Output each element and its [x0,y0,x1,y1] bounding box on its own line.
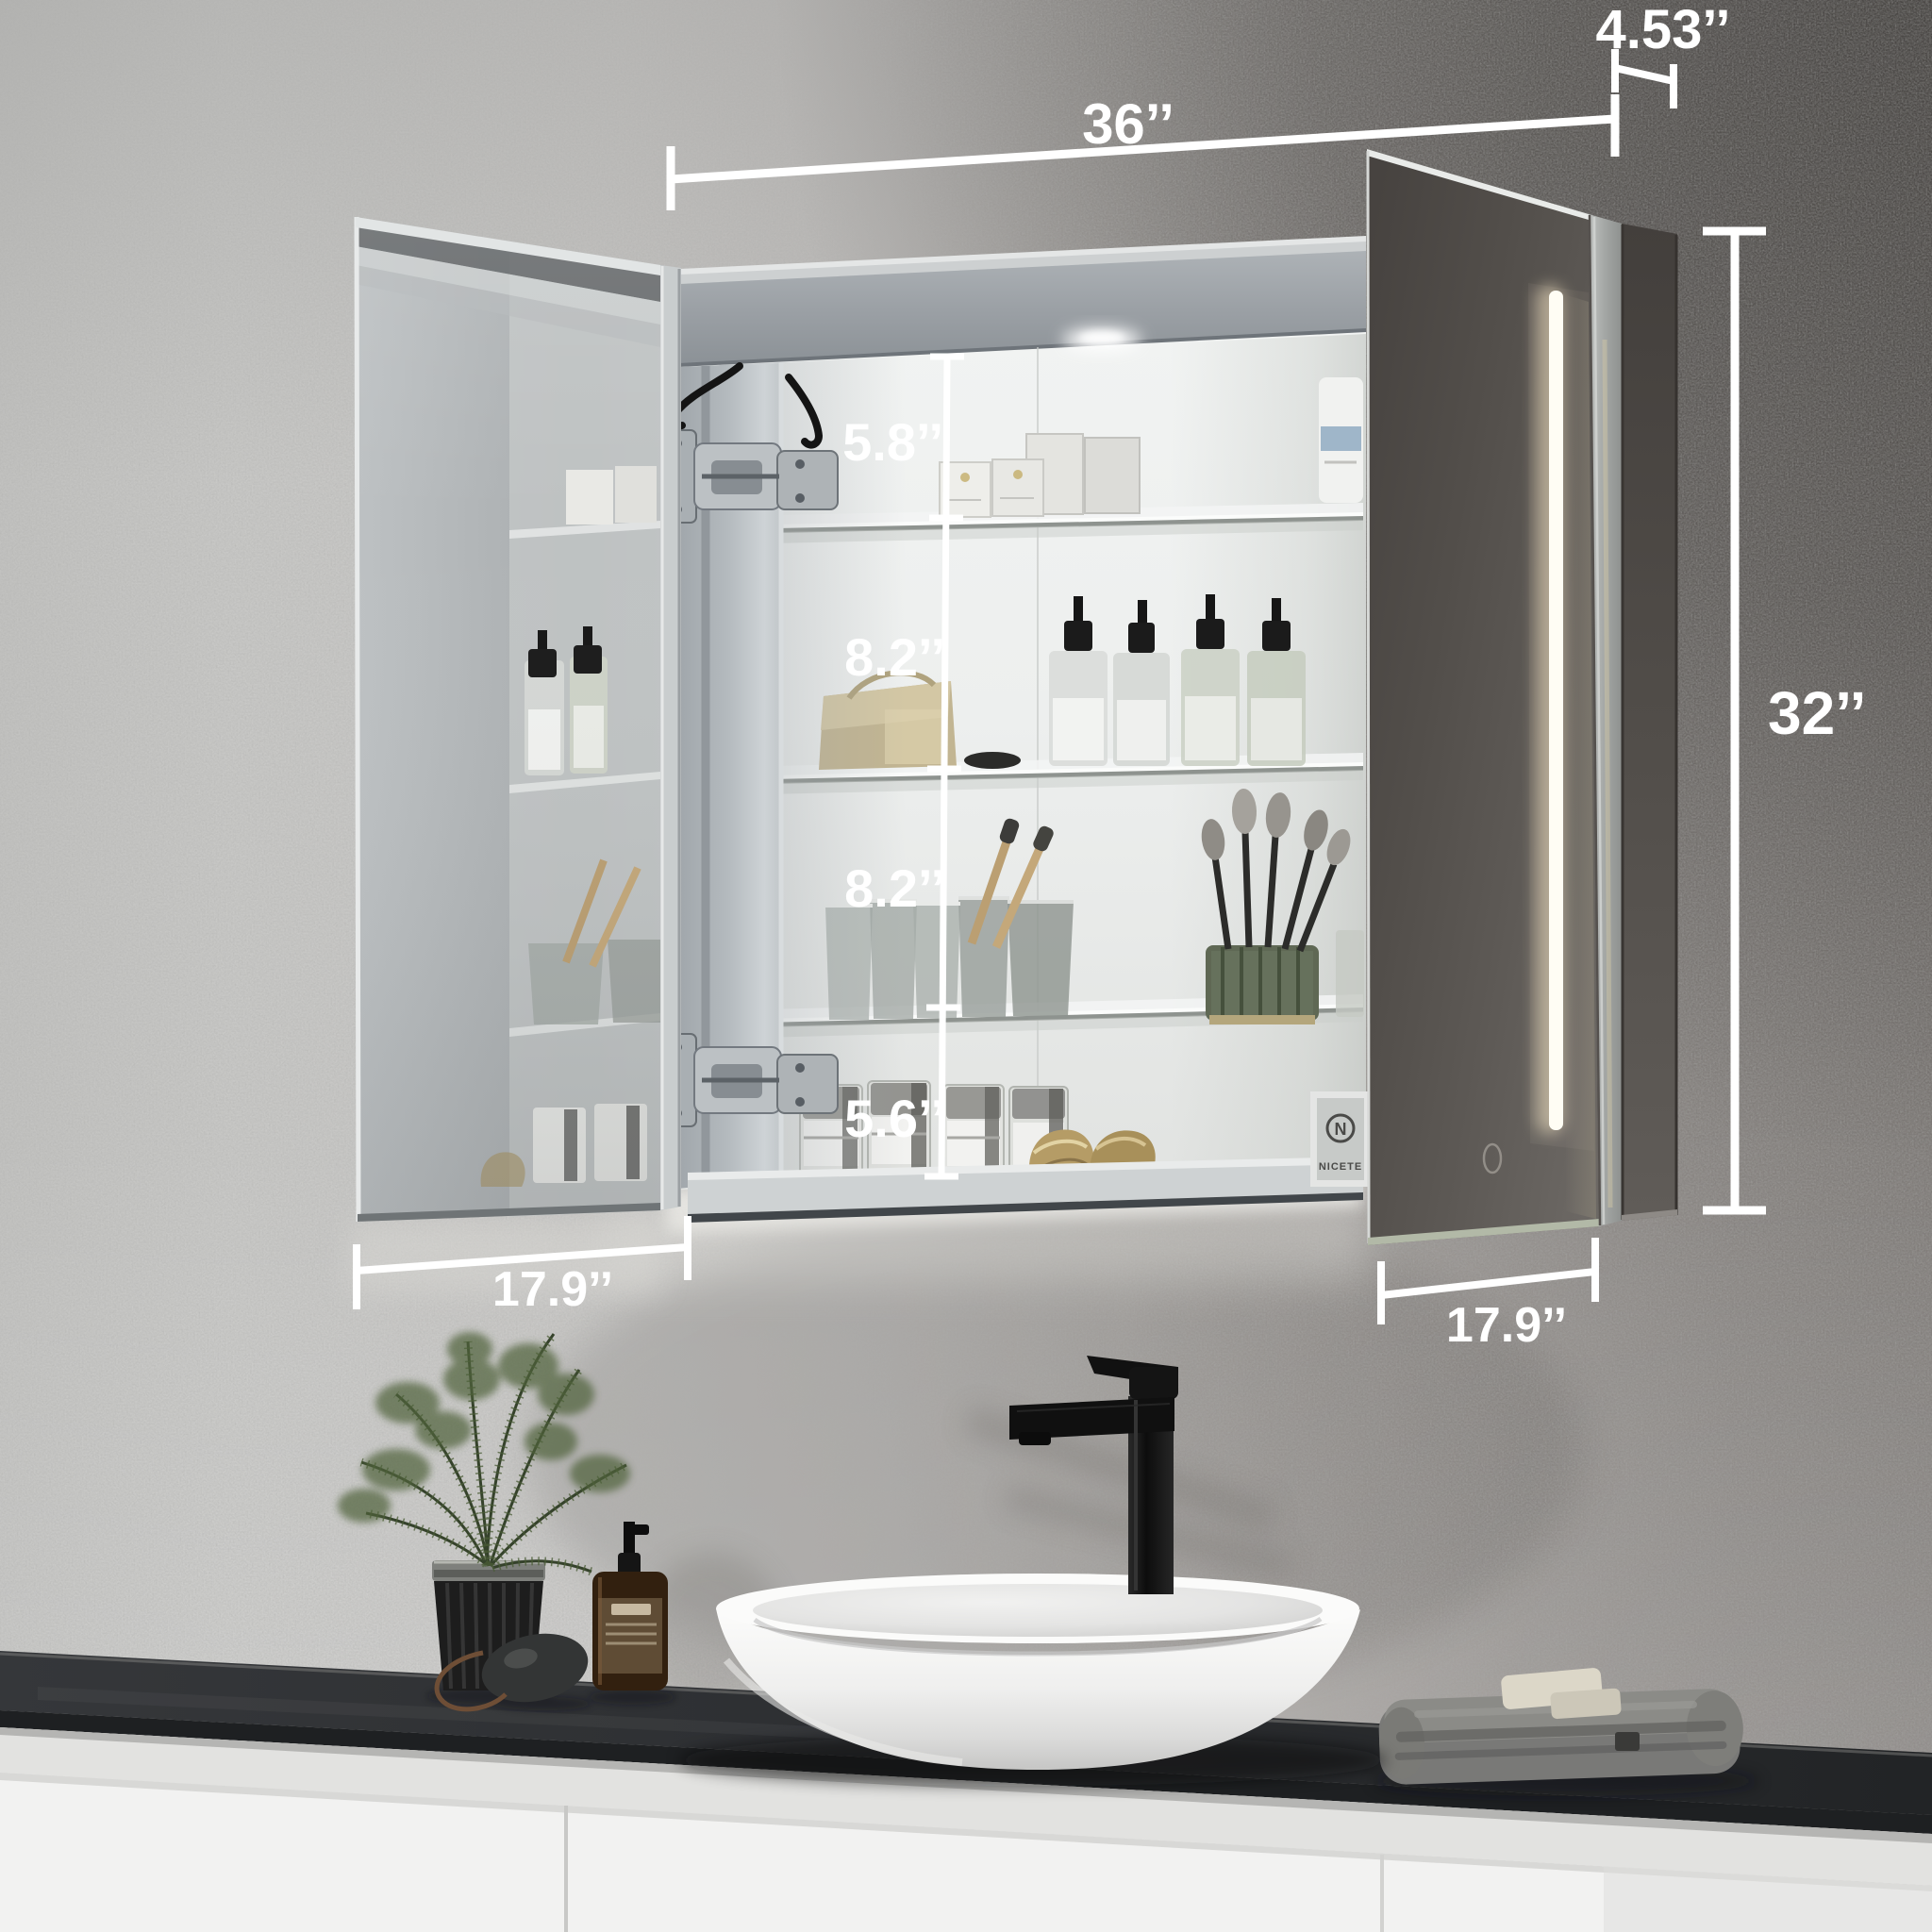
svg-text:17.9’’: 17.9’’ [1446,1298,1567,1353]
svg-text:8.2’’: 8.2’’ [844,627,945,687]
svg-text:4.53’’: 4.53’’ [1596,0,1731,60]
svg-text:8.2’’: 8.2’’ [844,858,945,918]
svg-text:N: N [1335,1120,1347,1139]
svg-text:32’’: 32’’ [1768,679,1866,747]
svg-text:36’’: 36’’ [1082,92,1174,156]
svg-text:5.6’’: 5.6’’ [844,1089,945,1148]
svg-text:NICETE: NICETE [1319,1161,1362,1173]
svg-text:17.9’’: 17.9’’ [492,1262,613,1317]
svg-text:5.8’’: 5.8’’ [842,412,943,472]
